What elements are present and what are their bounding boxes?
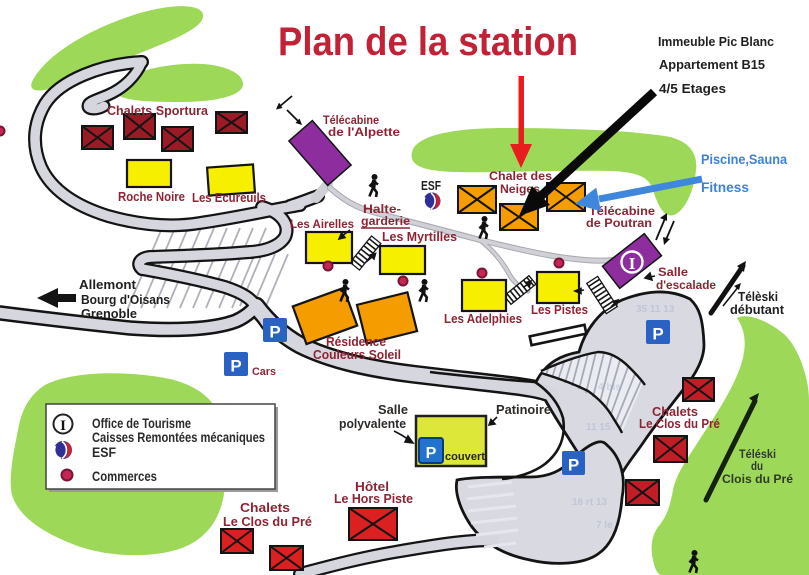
svg-text:Bourg d'Oisans: Bourg d'Oisans	[81, 292, 170, 307]
svg-text:Le Clos du Pré: Le Clos du Pré	[639, 416, 720, 431]
svg-text:7 le: 7 le	[596, 520, 613, 531]
svg-text:Salle: Salle	[378, 403, 408, 417]
svg-text:Chalet des: Chalet des	[489, 169, 552, 183]
svg-text:Piscine,Sauna: Piscine,Sauna	[701, 152, 787, 167]
svg-text:P: P	[568, 456, 579, 475]
svg-text:P: P	[269, 323, 280, 342]
svg-text:Couleurs Soleil: Couleurs Soleil	[313, 347, 401, 362]
svg-text:Chalets Sportura: Chalets Sportura	[107, 103, 209, 118]
svg-text:Les Airelles: Les Airelles	[290, 217, 354, 231]
svg-text:Commerces: Commerces	[92, 468, 157, 484]
svg-text:couvert: couvert	[445, 451, 485, 463]
svg-text:4/5 Etages: 4/5 Etages	[659, 81, 726, 96]
svg-text:d'escalade: d'escalade	[656, 278, 716, 292]
svg-text:Salle: Salle	[658, 265, 688, 279]
svg-text:Le Hors Piste: Le Hors Piste	[334, 491, 413, 506]
svg-text:Chalets: Chalets	[240, 500, 290, 515]
svg-text:Immeuble Pic Blanc: Immeuble Pic Blanc	[658, 34, 774, 49]
svg-text:Roche Noire: Roche Noire	[118, 189, 185, 204]
svg-text:du: du	[751, 459, 763, 473]
svg-text:Allemont: Allemont	[79, 277, 137, 292]
svg-text:I: I	[60, 418, 66, 434]
svg-text:Appartement B15: Appartement B15	[659, 57, 765, 72]
svg-text:Les Pistes: Les Pistes	[531, 302, 588, 317]
svg-text:polyvalente: polyvalente	[339, 417, 406, 431]
svg-text:de Poutran: de Poutran	[586, 216, 652, 230]
svg-text:Caisses Remontées mécaniques: Caisses Remontées mécaniques	[92, 429, 265, 445]
svg-text:P: P	[652, 325, 663, 344]
svg-text:Clois du Pré: Clois du Pré	[722, 472, 793, 486]
svg-text:Grenoble: Grenoble	[81, 306, 137, 321]
svg-text:ESF: ESF	[92, 444, 116, 460]
svg-text:P: P	[230, 357, 241, 376]
svg-text:ESF: ESF	[421, 178, 441, 193]
svg-text:I: I	[629, 254, 636, 273]
svg-text:Fitness: Fitness	[701, 180, 749, 195]
svg-text:4 bis: 4 bis	[598, 382, 621, 393]
svg-text:Les Adelphies: Les Adelphies	[444, 311, 522, 326]
svg-text:Cars: Cars	[252, 366, 276, 378]
svg-text:garderie: garderie	[361, 214, 410, 228]
svg-text:Patinoire: Patinoire	[496, 403, 551, 417]
svg-text:11 15: 11 15	[586, 422, 611, 433]
svg-text:de l'Alpette: de l'Alpette	[328, 125, 400, 139]
svg-text:débutant: débutant	[730, 302, 785, 317]
svg-text:Plan de la station: Plan de la station	[278, 20, 578, 64]
svg-text:Les Ecureuils: Les Ecureuils	[192, 190, 266, 205]
svg-text:Le Clos du Pré: Le Clos du Pré	[223, 514, 312, 529]
svg-text:35 11 13: 35 11 13	[636, 304, 675, 315]
svg-text:16 rt 13: 16 rt 13	[572, 497, 607, 508]
svg-text:P: P	[426, 445, 437, 462]
svg-text:Les Myrtilles: Les Myrtilles	[382, 229, 457, 244]
